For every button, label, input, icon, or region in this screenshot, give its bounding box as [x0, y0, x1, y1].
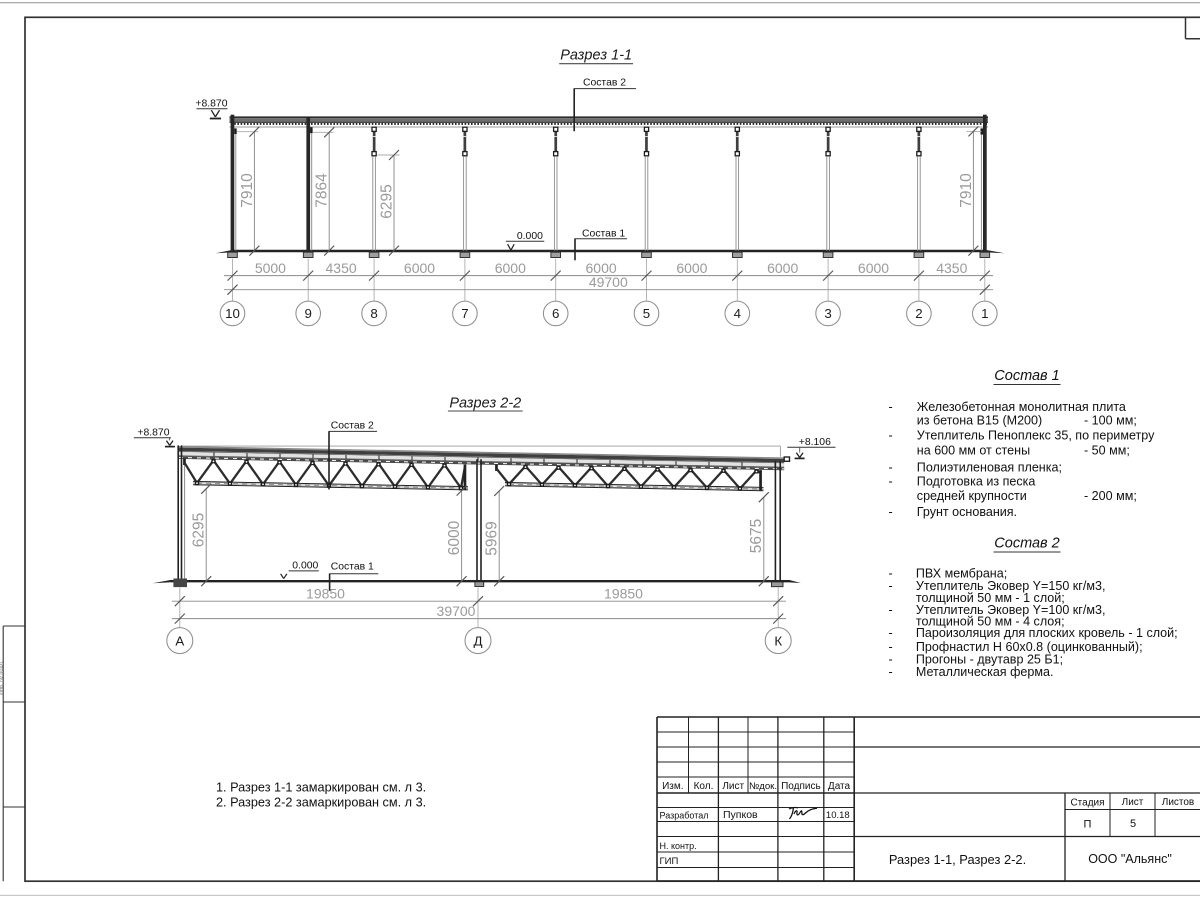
svg-text:0.000: 0.000: [517, 231, 543, 242]
svg-text:7: 7: [461, 306, 468, 321]
svg-text:Разрез 1-1, Разрез 2-2.: Разрез 1-1, Разрез 2-2.: [889, 852, 1026, 867]
svg-text:6000: 6000: [404, 260, 435, 276]
svg-text:+8.106: +8.106: [799, 437, 831, 448]
svg-text:0.000: 0.000: [292, 560, 318, 571]
svg-text:+8.870: +8.870: [195, 98, 227, 109]
svg-text:4350: 4350: [936, 260, 967, 276]
svg-text:-: -: [889, 626, 893, 640]
svg-text:Состав 2: Состав 2: [583, 77, 626, 88]
svg-text:-: -: [889, 475, 893, 489]
svg-text:А: А: [175, 633, 184, 648]
svg-text:7910: 7910: [239, 173, 256, 208]
svg-text:-: -: [889, 429, 893, 443]
svg-text:10.18: 10.18: [826, 810, 850, 821]
svg-text:5: 5: [643, 306, 650, 321]
svg-text:Подпись: Подпись: [781, 781, 821, 792]
svg-text:2. Разрез 2-2 замаркирован см.: 2. Разрез 2-2 замаркирован см. л 3.: [216, 796, 426, 810]
svg-text:1: 1: [981, 306, 988, 321]
svg-text:5000: 5000: [255, 260, 286, 276]
svg-text:Состав 1: Состав 1: [331, 562, 374, 573]
svg-text:К: К: [774, 633, 782, 648]
svg-text:Изм.: Изм.: [662, 781, 683, 792]
svg-text:49700: 49700: [589, 274, 628, 290]
svg-text:Пупков: Пупков: [723, 809, 758, 821]
svg-text:10: 10: [225, 306, 240, 321]
svg-text:средней крупности: средней крупности: [917, 489, 1027, 503]
svg-text:-: -: [889, 665, 893, 679]
svg-text:-: -: [889, 400, 893, 414]
svg-text:Состав 1: Состав 1: [582, 228, 625, 239]
svg-text:6: 6: [552, 306, 559, 321]
svg-text:19850: 19850: [604, 585, 643, 601]
svg-text:6000: 6000: [446, 520, 463, 555]
svg-text:+8.870: +8.870: [137, 427, 169, 438]
svg-text:5969: 5969: [484, 521, 501, 555]
svg-text:- 100 мм;: - 100 мм;: [1084, 413, 1137, 427]
svg-text:-: -: [889, 461, 893, 475]
svg-text:на 600 мм от стены: на 600 мм от стены: [917, 444, 1030, 458]
svg-text:№док.: №док.: [749, 781, 777, 792]
svg-text:- 50 мм;: - 50 мм;: [1084, 444, 1130, 458]
svg-text:2: 2: [915, 306, 922, 321]
svg-text:Полиэтиленовая пленка;: Полиэтиленовая пленка;: [917, 461, 1062, 475]
svg-text:6000: 6000: [676, 260, 707, 276]
svg-text:Разработал: Разработал: [660, 811, 709, 821]
svg-text:6295: 6295: [191, 513, 208, 547]
svg-text:Утеплитель Пеноплекс 35, по пе: Утеплитель Пеноплекс 35, по периметру: [917, 429, 1155, 443]
svg-text:39700: 39700: [437, 603, 476, 619]
svg-text:Лист: Лист: [722, 781, 744, 792]
svg-text:5: 5: [1130, 818, 1136, 830]
svg-text:ООО "Альянс": ООО "Альянс": [1088, 852, 1172, 866]
svg-text:7864: 7864: [314, 173, 331, 208]
svg-text:-: -: [889, 505, 893, 519]
svg-text:Листов: Листов: [1162, 797, 1195, 808]
svg-text:Дата: Дата: [828, 781, 851, 792]
svg-text:6000: 6000: [495, 260, 526, 276]
svg-text:3: 3: [824, 306, 831, 321]
svg-text:1. Разрез 1-1 замаркирован см.: 1. Разрез 1-1 замаркирован см. л 3.: [216, 781, 426, 795]
svg-text:Инв. № подл.: Инв. № подл.: [0, 660, 5, 695]
svg-text:-: -: [889, 603, 893, 617]
svg-text:4: 4: [734, 306, 741, 321]
svg-text:П: П: [1084, 819, 1092, 831]
svg-text:9: 9: [304, 306, 311, 321]
svg-text:6295: 6295: [378, 184, 395, 218]
svg-text:7910: 7910: [958, 173, 975, 208]
svg-text:Кол.: Кол.: [694, 781, 714, 792]
svg-text:Д: Д: [473, 633, 482, 648]
svg-text:Стадия: Стадия: [1070, 798, 1104, 809]
svg-text:Лист: Лист: [1122, 797, 1144, 808]
svg-text:- 200 мм;: - 200 мм;: [1084, 489, 1137, 503]
svg-text:из бетона В15 (М200): из бетона В15 (М200): [917, 413, 1042, 427]
svg-text:Грунт основания.: Грунт основания.: [917, 505, 1017, 519]
svg-text:5675: 5675: [748, 519, 765, 553]
svg-text:-: -: [889, 579, 893, 593]
svg-text:ГИП: ГИП: [660, 856, 679, 867]
svg-text:Железобетонная монолитная пли: Железобетонная монолитная плита: [917, 400, 1126, 414]
svg-text:Разрез 2-2: Разрез 2-2: [449, 396, 521, 412]
svg-text:Металлическая ферма.: Металлическая ферма.: [916, 665, 1054, 679]
svg-text:Разрез 1-1: Разрез 1-1: [560, 48, 632, 64]
svg-text:6000: 6000: [858, 260, 889, 276]
svg-text:Подготовка из песка: Подготовка из песка: [917, 475, 1036, 489]
svg-text:6000: 6000: [767, 260, 798, 276]
svg-text:8: 8: [370, 306, 377, 321]
svg-text:Состав 2: Состав 2: [331, 421, 374, 432]
svg-text:19850: 19850: [306, 585, 345, 601]
svg-text:Пароизоляция для плоских крове: Пароизоляция для плоских кровель - 1 сло…: [916, 626, 1178, 640]
svg-text:4350: 4350: [326, 260, 357, 276]
svg-text:Состав 2: Состав 2: [994, 536, 1059, 552]
svg-text:Н. контр.: Н. контр.: [660, 841, 697, 851]
svg-text:Состав 1: Состав 1: [994, 368, 1059, 384]
